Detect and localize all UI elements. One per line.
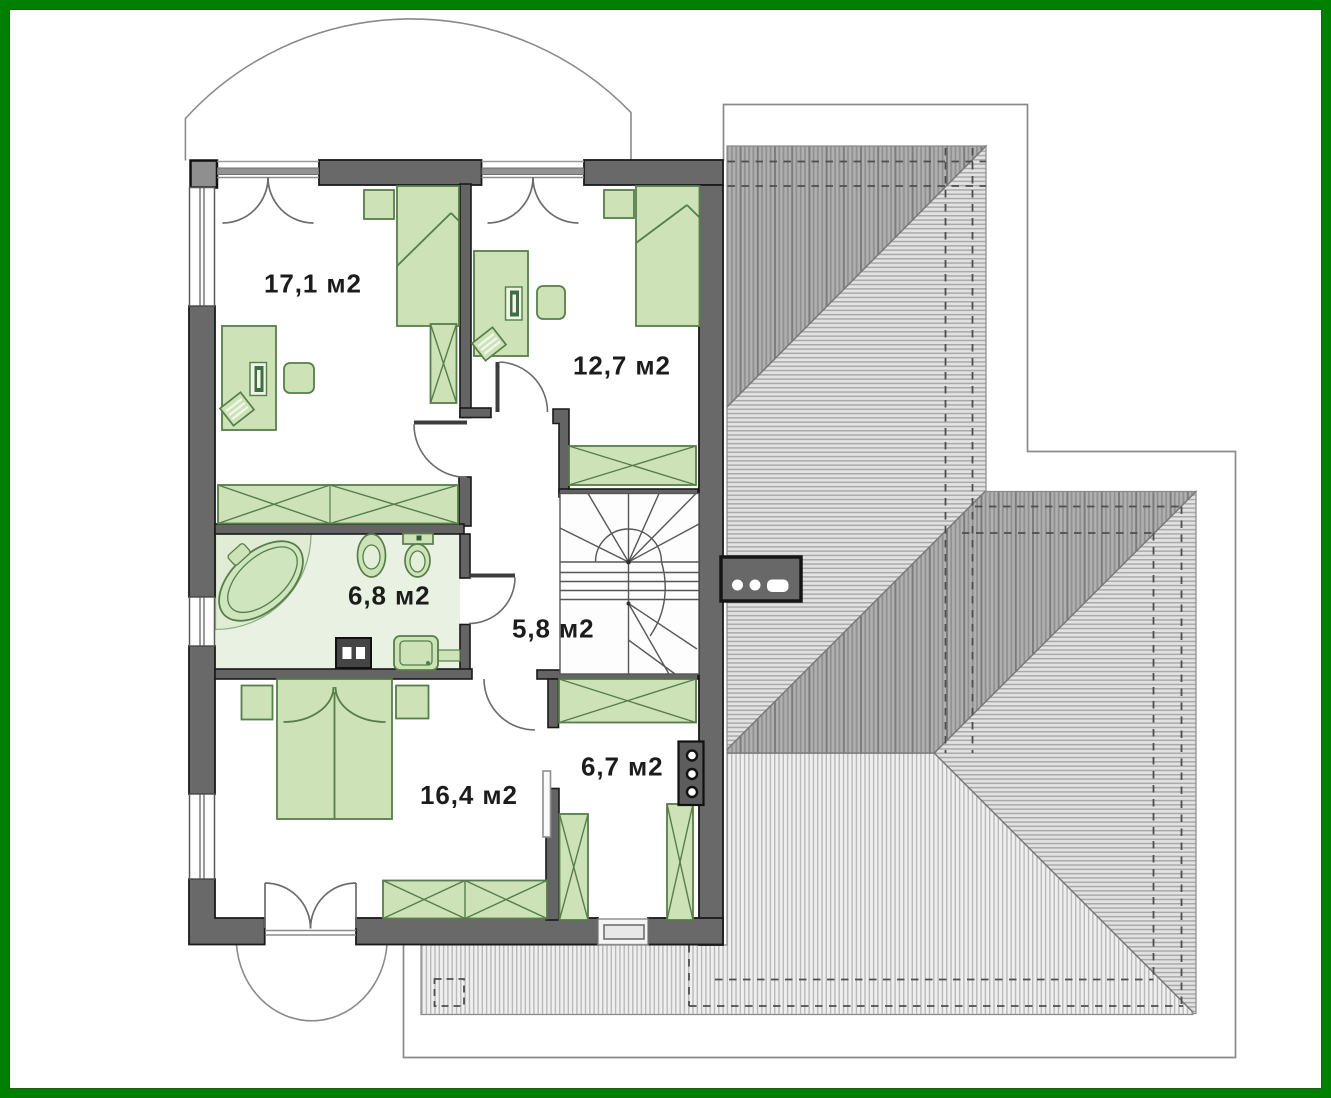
svg-text:6,8 м2: 6,8 м2 <box>348 581 430 611</box>
svg-text:16,4 м2: 16,4 м2 <box>420 780 518 810</box>
svg-text:17,1 м2: 17,1 м2 <box>264 269 362 299</box>
svg-text:12,7 м2: 12,7 м2 <box>573 351 671 381</box>
svg-text:6,7 м2: 6,7 м2 <box>581 752 663 782</box>
svg-text:5,8 м2: 5,8 м2 <box>512 614 594 644</box>
